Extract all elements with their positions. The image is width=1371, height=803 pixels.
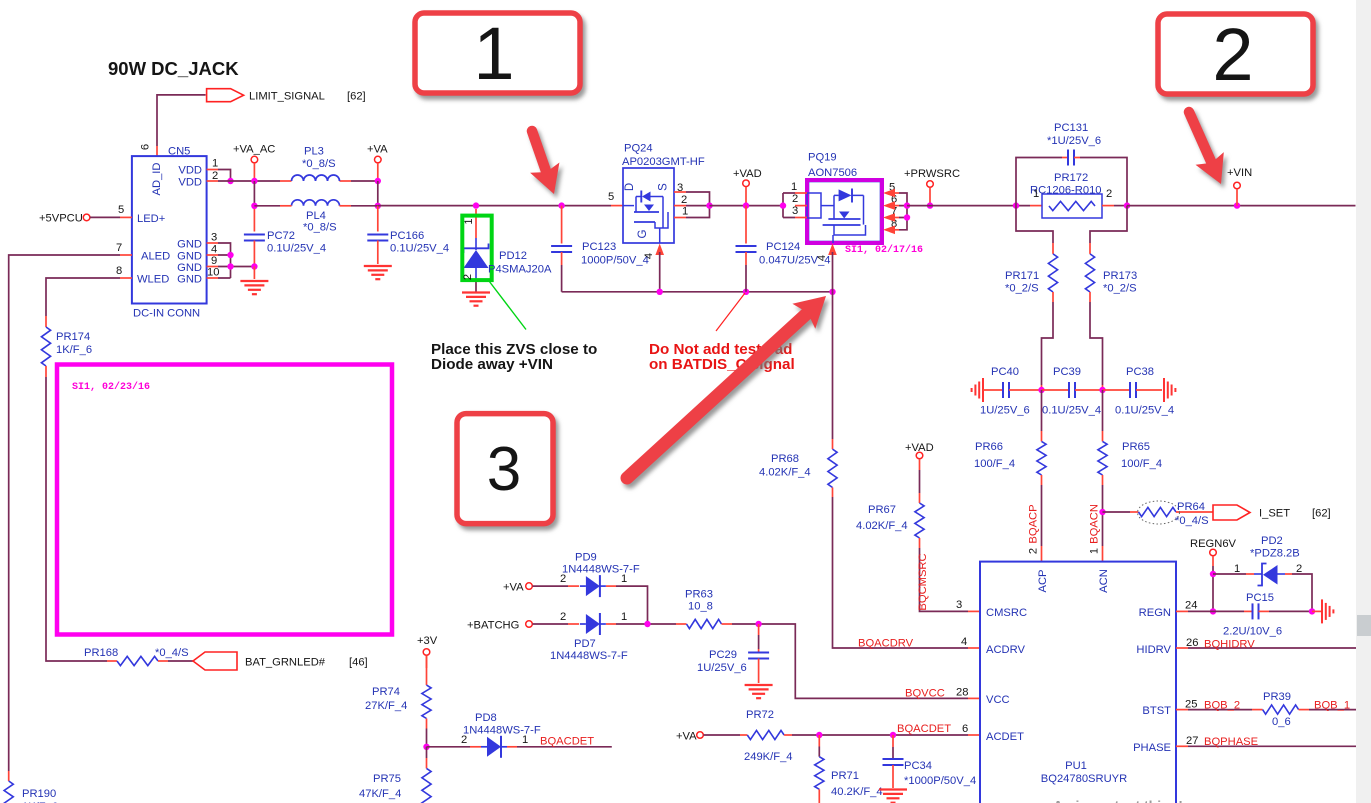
svg-text:AD_ID: AD_ID <box>151 163 163 196</box>
svg-text:+VA_AC: +VA_AC <box>233 144 275 156</box>
svg-text:10: 10 <box>207 267 219 279</box>
svg-text:PC15: PC15 <box>1246 592 1274 604</box>
svg-text:PR65: PR65 <box>1122 441 1150 453</box>
svg-text:2.2U/10V_6: 2.2U/10V_6 <box>1223 626 1282 638</box>
svg-text:PU1: PU1 <box>1065 760 1087 772</box>
svg-text:AP0203GMT-HF: AP0203GMT-HF <box>622 156 705 168</box>
svg-text:+VAD: +VAD <box>733 168 762 180</box>
svg-text:+VIN: +VIN <box>1227 167 1252 179</box>
svg-text:1U/25V_6: 1U/25V_6 <box>697 662 747 674</box>
svg-text:PR72: PR72 <box>746 709 774 721</box>
svg-text:4.02K/F_4: 4.02K/F_4 <box>759 467 811 479</box>
svg-text:2: 2 <box>462 274 474 280</box>
svg-text:1N4448WS-7-F: 1N4448WS-7-F <box>550 650 628 662</box>
svg-text:BQB_2: BQB_2 <box>1204 700 1240 712</box>
svg-text:28: 28 <box>956 687 968 699</box>
svg-text:1: 1 <box>791 181 797 193</box>
svg-text:2: 2 <box>560 611 566 623</box>
svg-text:BQ24780SRUYR: BQ24780SRUYR <box>1041 773 1127 785</box>
svg-text:*0_8/S: *0_8/S <box>303 222 337 234</box>
svg-text:4: 4 <box>961 636 967 648</box>
svg-text:1: 1 <box>1033 188 1039 200</box>
svg-text:8: 8 <box>116 265 122 277</box>
svg-text:PR67: PR67 <box>868 504 896 516</box>
svg-text:GND: GND <box>177 239 202 251</box>
svg-text:ALED: ALED <box>141 251 170 263</box>
svg-text:*0_2/S: *0_2/S <box>1103 283 1137 295</box>
svg-text:7: 7 <box>116 242 122 254</box>
svg-text:1: 1 <box>682 206 688 218</box>
svg-text:3: 3 <box>956 599 962 611</box>
svg-text:VDD: VDD <box>178 165 202 177</box>
svg-text:1: 1 <box>1234 563 1240 575</box>
svg-text:*0_2/S: *0_2/S <box>1005 283 1039 295</box>
svg-text:PR173: PR173 <box>1103 270 1137 282</box>
svg-text:S: S <box>658 183 670 191</box>
svg-text:BQHIDRV: BQHIDRV <box>1204 639 1255 651</box>
svg-text:PD8: PD8 <box>475 712 497 724</box>
svg-text:BQCMSRC: BQCMSRC <box>917 553 929 610</box>
svg-text:1N4448WS-7-F: 1N4448WS-7-F <box>562 564 640 576</box>
svg-text:PR39: PR39 <box>1263 691 1291 703</box>
svg-text:1: 1 <box>463 218 475 224</box>
svg-text:PC123: PC123 <box>582 241 616 253</box>
svg-text:1: 1 <box>522 734 528 746</box>
svg-text:0.1U/25V_4: 0.1U/25V_4 <box>1115 405 1174 417</box>
svg-text:AON7506: AON7506 <box>808 167 857 179</box>
svg-text:1U/25V_6: 1U/25V_6 <box>980 405 1030 417</box>
svg-text:40.2K/F_4: 40.2K/F_4 <box>831 786 883 798</box>
svg-text:PL4: PL4 <box>306 210 326 222</box>
svg-text:9: 9 <box>211 255 217 267</box>
svg-text:PR63: PR63 <box>685 589 713 601</box>
svg-text:1: 1 <box>621 573 627 585</box>
svg-text:47K/F_4: 47K/F_4 <box>359 788 401 800</box>
svg-text:REGN6V: REGN6V <box>1190 538 1237 550</box>
svg-text:RC1206-R010: RC1206-R010 <box>1030 185 1102 197</box>
svg-text:PR74: PR74 <box>372 686 400 698</box>
svg-text:PR71: PR71 <box>831 770 859 782</box>
svg-text:PR190: PR190 <box>22 788 56 800</box>
svg-text:PC131: PC131 <box>1054 122 1088 134</box>
svg-text:4: 4 <box>643 253 655 259</box>
svg-text:[62]: [62] <box>347 91 366 103</box>
svg-text:25: 25 <box>1185 699 1197 711</box>
svg-text:PR171: PR171 <box>1005 270 1039 282</box>
svg-text:1N4448WS-7-F: 1N4448WS-7-F <box>463 725 541 737</box>
svg-text:CN5: CN5 <box>168 146 190 158</box>
svg-text:[46]: [46] <box>349 657 368 669</box>
svg-text:3: 3 <box>211 232 217 244</box>
svg-text:LIMIT_SIGNAL: LIMIT_SIGNAL <box>249 91 325 103</box>
svg-text:BQPHASE: BQPHASE <box>1204 736 1258 748</box>
svg-text:2: 2 <box>212 170 218 182</box>
svg-text:1K/F_6: 1K/F_6 <box>56 344 92 356</box>
svg-text:[62]: [62] <box>1312 508 1331 520</box>
svg-text:1: 1 <box>1089 548 1101 554</box>
svg-text:6: 6 <box>962 723 968 735</box>
svg-text:ACN: ACN <box>1098 569 1110 593</box>
svg-text:PC166: PC166 <box>390 230 424 242</box>
svg-text:CMSRC: CMSRC <box>986 607 1027 619</box>
svg-text:+BATCHG: +BATCHG <box>467 620 519 632</box>
svg-text:GND: GND <box>177 251 202 263</box>
svg-text:REGN: REGN <box>1139 607 1171 619</box>
svg-text:2: 2 <box>1296 563 1302 575</box>
svg-text:PR168: PR168 <box>84 647 118 659</box>
svg-text:G: G <box>637 229 649 238</box>
svg-text:4.02K/F_4: 4.02K/F_4 <box>856 520 908 532</box>
svg-text:BQACDRV: BQACDRV <box>858 638 914 650</box>
svg-text:PD12: PD12 <box>499 250 527 262</box>
svg-text:27K/F_4: 27K/F_4 <box>365 700 407 712</box>
svg-text:+3V: +3V <box>417 635 438 647</box>
svg-text:PC40: PC40 <box>991 366 1019 378</box>
svg-text:5: 5 <box>608 191 614 203</box>
svg-text:PC124: PC124 <box>766 241 800 253</box>
svg-text:0.1U/25V_4: 0.1U/25V_4 <box>1042 405 1101 417</box>
svg-text:5: 5 <box>118 204 124 216</box>
svg-text:PR68: PR68 <box>771 453 799 465</box>
svg-text:ACDRV: ACDRV <box>986 644 1025 656</box>
svg-text:D: D <box>624 183 636 191</box>
svg-text:*1U/25V_6: *1U/25V_6 <box>1047 135 1101 147</box>
svg-text:ACDET: ACDET <box>986 731 1024 743</box>
svg-text:*0_4/S: *0_4/S <box>155 647 189 659</box>
svg-text:BTST: BTST <box>1142 705 1171 717</box>
svg-text:2: 2 <box>1028 548 1040 554</box>
svg-text:PC34: PC34 <box>904 760 932 772</box>
svg-text:24: 24 <box>1185 600 1197 612</box>
svg-text:BQB_1: BQB_1 <box>1314 700 1350 712</box>
svg-text:+PRWSRC: +PRWSRC <box>904 168 960 180</box>
svg-text:PR174: PR174 <box>56 331 90 343</box>
svg-text:LED+: LED+ <box>137 213 165 225</box>
svg-text:2: 2 <box>461 734 467 746</box>
svg-text:*1000P/50V_4: *1000P/50V_4 <box>904 775 976 787</box>
svg-text:1: 1 <box>473 12 514 95</box>
svg-text:PQ19: PQ19 <box>808 152 837 164</box>
svg-text:1000P/50V_4: 1000P/50V_4 <box>581 255 649 267</box>
svg-text:1: 1 <box>621 611 627 623</box>
svg-text:100/F_4: 100/F_4 <box>1121 458 1162 470</box>
svg-text:PD9: PD9 <box>575 552 597 564</box>
svg-text:DC-IN CONN: DC-IN CONN <box>133 308 200 320</box>
svg-text:10_8: 10_8 <box>688 601 713 613</box>
svg-text:GND: GND <box>177 274 202 286</box>
svg-text:3: 3 <box>487 435 521 504</box>
svg-text:249K/F_4: 249K/F_4 <box>744 751 793 763</box>
svg-text:WLED: WLED <box>137 274 169 286</box>
svg-text:+5VPCU: +5VPCU <box>39 213 83 225</box>
svg-text:PD2: PD2 <box>1261 535 1283 547</box>
svg-text:PR172: PR172 <box>1054 172 1088 184</box>
svg-text:*0_8/S: *0_8/S <box>302 158 336 170</box>
svg-text:0.1U/25V_4: 0.1U/25V_4 <box>390 243 449 255</box>
svg-text:BAT_GRNLED#: BAT_GRNLED# <box>245 657 326 669</box>
svg-text:PR66: PR66 <box>975 441 1003 453</box>
svg-text:100/F_4: 100/F_4 <box>974 458 1015 470</box>
svg-text:4: 4 <box>816 255 828 261</box>
svg-text:PC38: PC38 <box>1126 366 1154 378</box>
svg-text:90W DC_JACK: 90W DC_JACK <box>108 58 239 79</box>
svg-text:2: 2 <box>792 193 798 205</box>
svg-text:6: 6 <box>140 144 152 150</box>
svg-text:PC39: PC39 <box>1053 366 1081 378</box>
svg-text:HIDRV: HIDRV <box>1136 644 1171 656</box>
svg-text:BQACP: BQACP <box>1028 504 1040 543</box>
svg-text:2: 2 <box>1106 188 1112 200</box>
svg-text:2: 2 <box>560 573 566 585</box>
svg-text:PD7: PD7 <box>574 638 596 650</box>
svg-text:PHASE: PHASE <box>1133 742 1171 754</box>
svg-text:BQACDET: BQACDET <box>897 723 951 735</box>
svg-text:+VA: +VA <box>503 582 524 594</box>
svg-text:0_6: 0_6 <box>1272 716 1291 728</box>
svg-text:PC29: PC29 <box>709 649 737 661</box>
svg-text:PR75: PR75 <box>373 773 401 785</box>
svg-text:4: 4 <box>211 244 217 256</box>
svg-text:VCC: VCC <box>986 694 1010 706</box>
svg-text:+VA: +VA <box>676 731 697 743</box>
svg-text:2: 2 <box>681 194 687 206</box>
svg-text:0.1U/25V_4: 0.1U/25V_4 <box>267 243 326 255</box>
svg-text:SI1, 02/17/16: SI1, 02/17/16 <box>845 244 923 256</box>
svg-text:PR64: PR64 <box>1177 501 1205 513</box>
svg-text:on BATDIS_C signal: on BATDIS_C signal <box>649 356 795 373</box>
svg-text:1: 1 <box>212 158 218 170</box>
svg-text:*PDZ8.2B: *PDZ8.2B <box>1250 548 1300 560</box>
svg-text:GND: GND <box>177 262 202 274</box>
svg-text:+VA: +VA <box>367 144 388 156</box>
svg-text:ACP: ACP <box>1037 569 1049 592</box>
svg-text:P4SMAJ20A: P4SMAJ20A <box>488 264 552 276</box>
svg-text:3: 3 <box>792 205 798 217</box>
svg-text:SI1, 02/23/16: SI1, 02/23/16 <box>72 381 150 393</box>
svg-text:*0_4/S: *0_4/S <box>1175 515 1209 527</box>
svg-text:PL3: PL3 <box>304 146 324 158</box>
svg-text:27: 27 <box>1186 735 1198 747</box>
svg-text:I_SET: I_SET <box>1259 508 1290 520</box>
svg-text:BQVCC: BQVCC <box>905 688 945 700</box>
svg-text:PQ24: PQ24 <box>624 143 653 155</box>
svg-text:An important thing!: An important thing! <box>1053 798 1183 803</box>
svg-text:2: 2 <box>1212 13 1253 96</box>
svg-text:BQACN: BQACN <box>1089 504 1101 544</box>
svg-text:VDD: VDD <box>178 177 202 189</box>
svg-text:Diode away +VIN: Diode away +VIN <box>431 356 553 373</box>
svg-text:PC72: PC72 <box>267 230 295 242</box>
svg-text:BQACDET: BQACDET <box>540 736 594 748</box>
